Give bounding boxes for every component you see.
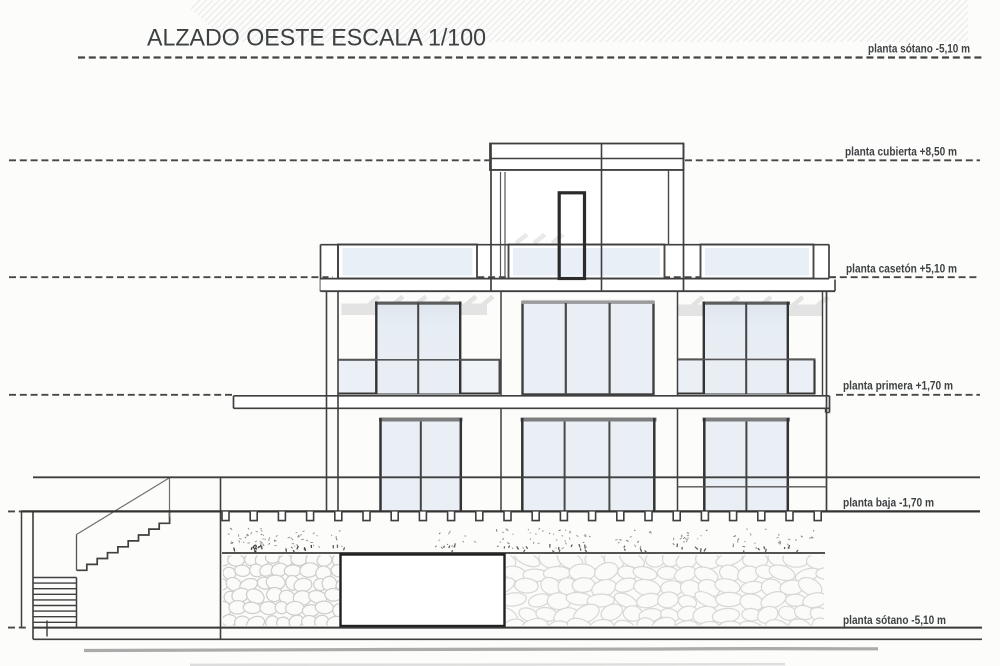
svg-text:planta primera +1,70 m: planta primera +1,70 m: [843, 379, 953, 393]
svg-text:ALZADO OESTE ESCALA 1/100: ALZADO OESTE ESCALA 1/100: [147, 24, 486, 51]
svg-text:planta cubierta +8,50 m: planta cubierta +8,50 m: [845, 145, 957, 159]
svg-text:planta casetón +5,10 m: planta casetón +5,10 m: [846, 261, 957, 275]
svg-text:planta baja -1,70 m: planta baja -1,70 m: [843, 496, 934, 510]
svg-text:planta sótano -5,10 m: planta sótano -5,10 m: [843, 613, 946, 627]
svg-text:planta sótano -5,10 m: planta sótano -5,10 m: [868, 41, 970, 55]
